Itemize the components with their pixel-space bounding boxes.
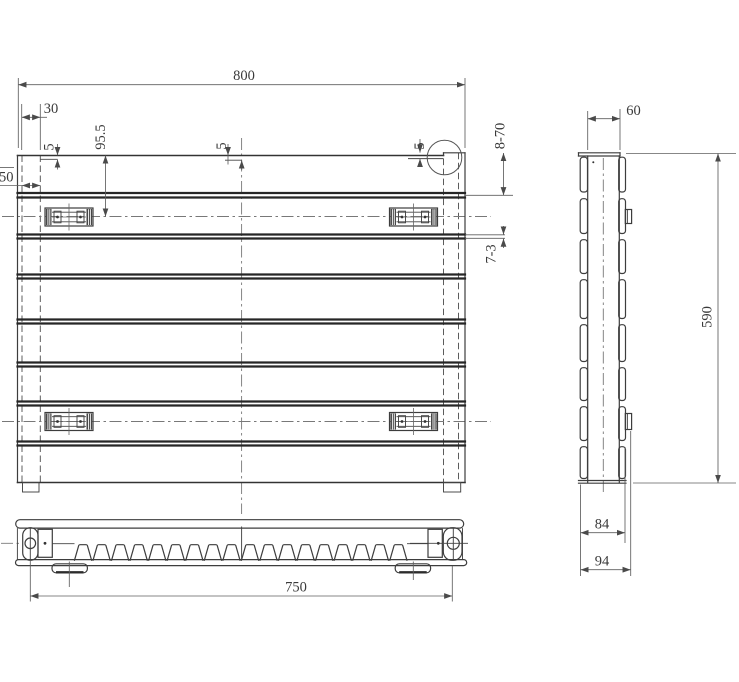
dim-body-depth: 84 <box>595 517 610 533</box>
lower-wall-tab <box>625 414 631 430</box>
side-fins-left <box>580 157 587 478</box>
bottom-view-dimensions: 750 <box>30 561 452 602</box>
dim-overall-width: 800 <box>233 68 255 84</box>
mounting-bracket <box>45 204 93 231</box>
side-view <box>579 153 632 492</box>
detail-circle <box>427 140 462 175</box>
mounting-bracket <box>390 204 438 231</box>
dim-left-offset: 30 <box>44 101 59 117</box>
right-foot <box>444 483 461 493</box>
side-view-dimensions: 60 590 84 94 <box>581 103 737 576</box>
left-foot <box>23 483 40 493</box>
dim-depth: 60 <box>626 103 641 119</box>
upper-wall-tab <box>625 210 631 224</box>
dim-tapping-span: 750 <box>285 580 307 596</box>
radiator-drawing-canvas: 800 30 95.5 5 5 5 50 8-70 <box>0 0 739 682</box>
convector-fins <box>75 545 407 561</box>
bracket-hook-right <box>395 562 430 581</box>
dim-bracket-drop: 95.5 <box>93 124 109 149</box>
dim-gap-spec: 7-3 <box>484 244 500 263</box>
dim-inset-right: 5 <box>412 142 428 149</box>
dim-inset-center: 5 <box>214 142 230 149</box>
dim-inset-left: 5 <box>42 143 58 150</box>
mounting-bracket <box>45 408 93 435</box>
drawing-page: 800 30 95.5 5 5 5 50 8-70 <box>0 0 739 682</box>
front-view <box>2 138 491 514</box>
bottom-view <box>1 520 468 587</box>
mounting-bracket <box>390 408 438 435</box>
dim-overall-height: 590 <box>700 306 716 328</box>
dim-edge-offset: 50 <box>0 170 14 186</box>
dim-total-depth: 94 <box>595 554 610 570</box>
top-bar <box>16 520 464 528</box>
dim-panel-spec: 8-70 <box>493 123 509 150</box>
